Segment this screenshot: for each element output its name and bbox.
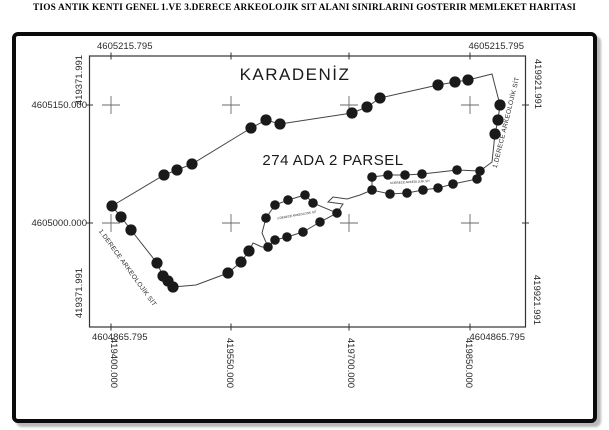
- survey-point-dot: [385, 189, 395, 199]
- survey-point-dot: [374, 92, 385, 103]
- survey-point-dot: [274, 118, 285, 129]
- survey-point-dot: [367, 185, 377, 195]
- scanned-map-page: TIOS ANTIK KENTI GENEL 1.VE 3.DERECE ARK…: [0, 0, 609, 430]
- survey-point-dot: [308, 198, 318, 208]
- survey-point-dot: [282, 232, 292, 242]
- survey-point-dot: [235, 256, 246, 267]
- survey-point-dot: [433, 183, 443, 193]
- coord-bottom-x1-rotated: 419400.000: [108, 338, 119, 388]
- survey-point-dot: [186, 158, 197, 169]
- survey-point-dot: [472, 174, 482, 184]
- survey-point-dot: [106, 200, 117, 211]
- survey-point-dot: [261, 213, 271, 223]
- survey-point-dot: [402, 188, 412, 198]
- survey-point-dot: [245, 122, 256, 133]
- boundary-layer: [86, 53, 529, 331]
- survey-point-dot: [452, 165, 462, 175]
- survey-point-dot: [263, 242, 273, 252]
- survey-point-dot: [300, 190, 310, 200]
- survey-point-dot: [167, 281, 178, 292]
- survey-point-dot: [243, 245, 254, 256]
- coord-top-left: 4605215.795: [97, 41, 152, 52]
- survey-point-dot: [383, 170, 393, 180]
- coord-bottom-x3-rotated: 419700.000: [345, 338, 356, 388]
- survey-point-dot: [315, 217, 325, 227]
- survey-point-dot: [462, 74, 473, 85]
- coord-left-upper-rotated: 419371.991: [74, 55, 85, 105]
- coord-right-lower-rotated: 419921.991: [531, 275, 542, 325]
- survey-point-dot: [158, 169, 169, 180]
- coord-bottom-x2-rotated: 419550.000: [224, 338, 235, 388]
- survey-point-dot: [400, 170, 410, 180]
- survey-point-dot: [283, 195, 293, 205]
- site-map: 4605215.795 4605215.795 419371.991 41992…: [0, 0, 609, 430]
- inner-zone-label-right: 3.DERECE ARKEOLOJİK SİT: [390, 178, 430, 185]
- survey-point-dot: [270, 200, 280, 210]
- survey-point-dot: [361, 101, 372, 112]
- survey-point-dot: [270, 235, 280, 245]
- inner-zone-label-left: 3.DERECE ARKEOLOJİK SİT: [277, 209, 317, 221]
- boundary-label-left: 1.DERECE ARKEOLOJİK SİT: [97, 227, 159, 308]
- coord-top-right: 4605215.795: [469, 41, 524, 52]
- survey-point-dot: [298, 227, 308, 237]
- survey-point-dot: [222, 267, 233, 278]
- coord-bottom-x4-rotated: 419850.000: [463, 338, 474, 388]
- coord-right-upper-rotated: 419921.991: [532, 59, 543, 109]
- survey-point-dot: [418, 185, 428, 195]
- survey-point-dot: [151, 257, 162, 268]
- survey-point-dot: [432, 79, 443, 90]
- survey-point-dot: [448, 179, 458, 189]
- survey-point-dot: [115, 211, 126, 222]
- survey-point-dot: [332, 208, 342, 218]
- sea-label: KARADENİZ: [240, 65, 351, 84]
- coord-left-mid-lower: 4605000.000: [32, 218, 87, 229]
- coord-left-mid-upper: 4605150.000: [32, 100, 87, 111]
- survey-point-dot: [367, 172, 377, 182]
- coord-left-lower-rotated: 419371.991: [74, 268, 85, 318]
- coord-bottom-right: 4604865.795: [470, 332, 525, 343]
- survey-point-dot: [171, 164, 182, 175]
- survey-point-dot: [449, 76, 460, 87]
- survey-point-dot: [346, 107, 357, 118]
- survey-point-dot: [494, 99, 505, 110]
- survey-point-dot: [125, 224, 136, 235]
- survey-point-dot: [260, 114, 271, 125]
- parcel-label: 274 ADA 2 PARSEL: [262, 152, 403, 169]
- survey-point-dot: [417, 169, 427, 179]
